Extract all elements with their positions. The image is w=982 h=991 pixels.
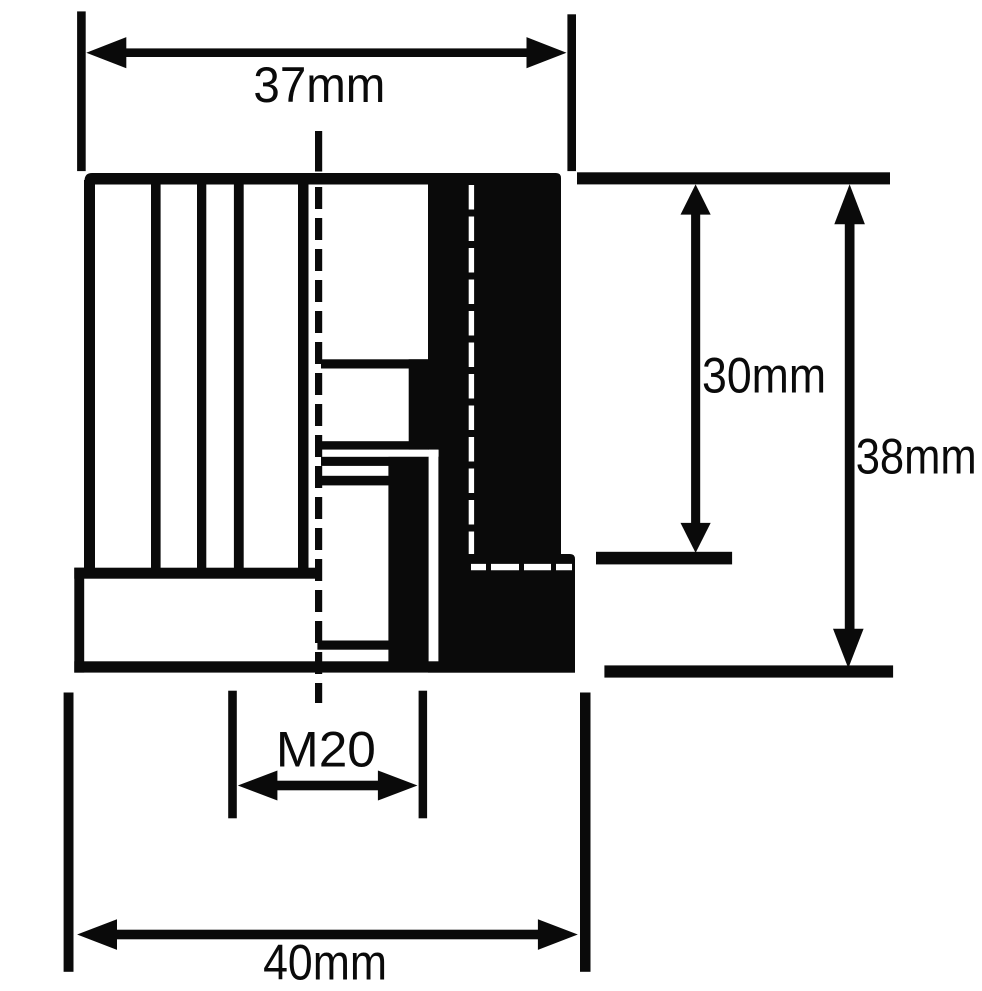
svg-text:37mm: 37mm [253,57,385,113]
svg-text:40mm: 40mm [263,935,387,991]
svg-text:30mm: 30mm [702,348,826,404]
svg-text:38mm: 38mm [856,429,977,485]
svg-text:M20: M20 [276,722,376,778]
